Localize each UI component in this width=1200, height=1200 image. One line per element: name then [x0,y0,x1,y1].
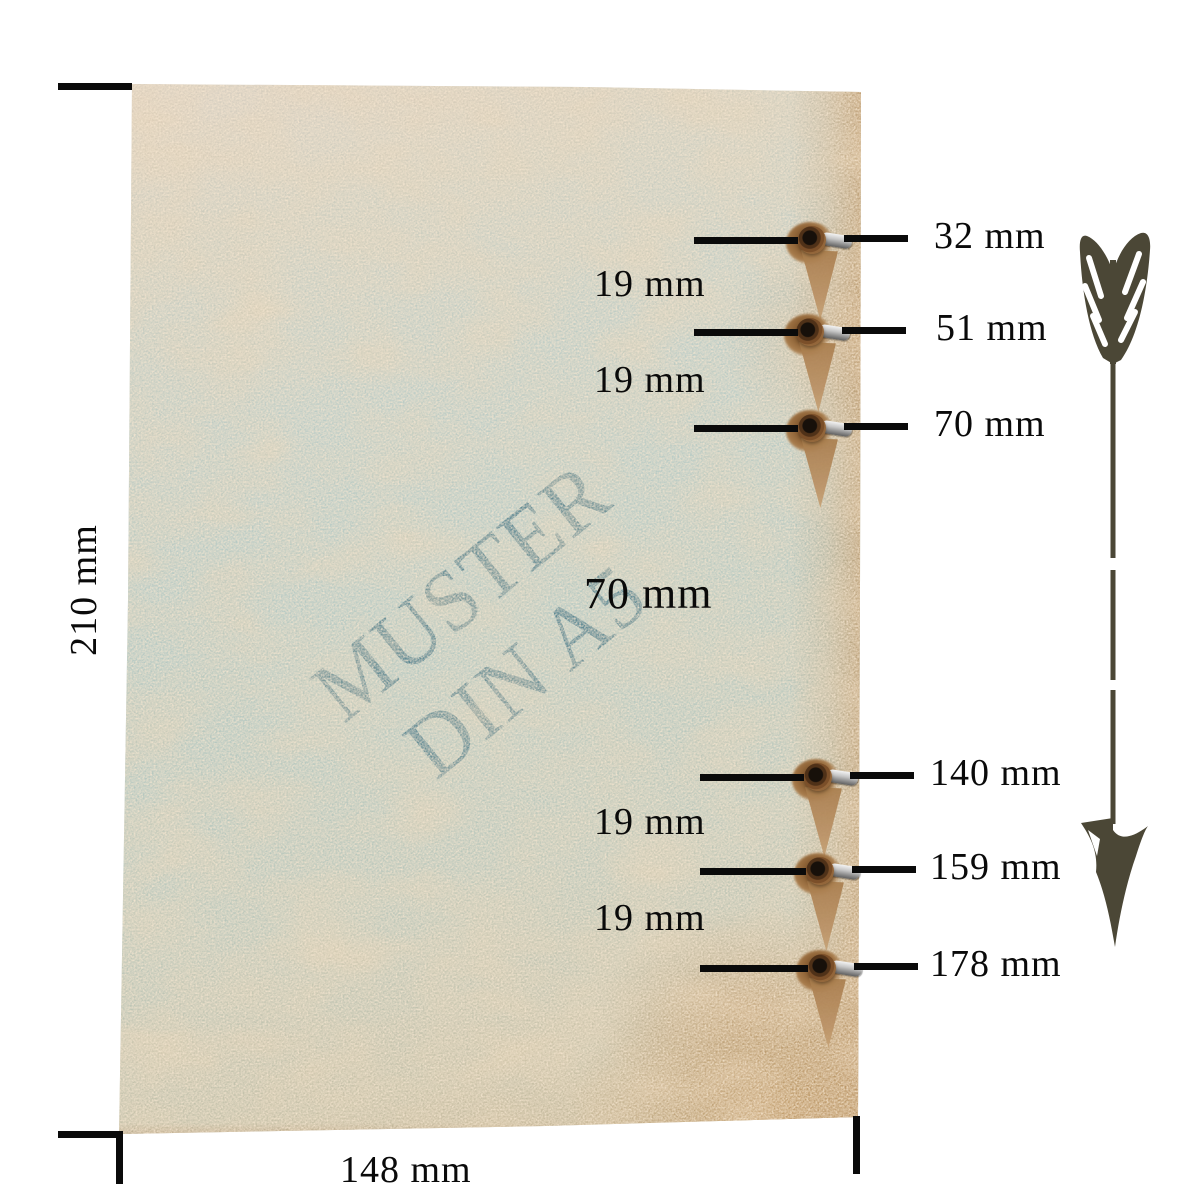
spacing-label: 19 mm [594,262,706,306]
hole-label: 178 mm [930,942,1062,986]
spacing-label: 19 mm [594,800,706,844]
pointer-line-right [842,327,906,334]
tick-bottom-right-v [853,1116,860,1174]
eyelet [808,954,836,982]
pointer-line-right [844,235,908,242]
hole-label: 70 mm [934,402,1046,446]
sheet-height-label: 210 mm [62,502,106,678]
hole-label: 159 mm [930,845,1062,889]
pointer-line-right [850,772,914,779]
spacing-label: 19 mm [594,896,706,940]
pointer-line-left [694,425,798,432]
spacing-label: 70 mm [584,568,712,619]
pointer-line-left [694,237,798,244]
pointer-line-left [700,868,806,875]
arrow-ornament [1053,222,1177,958]
eyelet [804,763,832,791]
sheet-width-label: 148 mm [340,1148,472,1192]
hole-label: 32 mm [934,214,1046,258]
spacing-label: 19 mm [594,358,706,402]
pointer-line-left [694,329,798,336]
tick-bottom-left-v [116,1131,123,1184]
eyelet [806,857,834,885]
pointer-line-left [700,774,804,781]
pointer-line-left [700,965,808,972]
eyelet [798,414,826,442]
diagram-canvas: MUSTER DIN A5 32 mm 19 mm 51 mm 19 mm [0,0,1200,1200]
eyelet [798,226,826,254]
hole-label: 51 mm [936,306,1048,350]
tick-bottom-left-h [58,1131,122,1138]
eyelet [796,318,824,346]
pointer-line-right [852,866,916,873]
tick-top-left [58,83,132,90]
pointer-line-right [854,963,918,970]
pointer-line-right [844,423,908,430]
hole-label: 140 mm [930,751,1062,795]
